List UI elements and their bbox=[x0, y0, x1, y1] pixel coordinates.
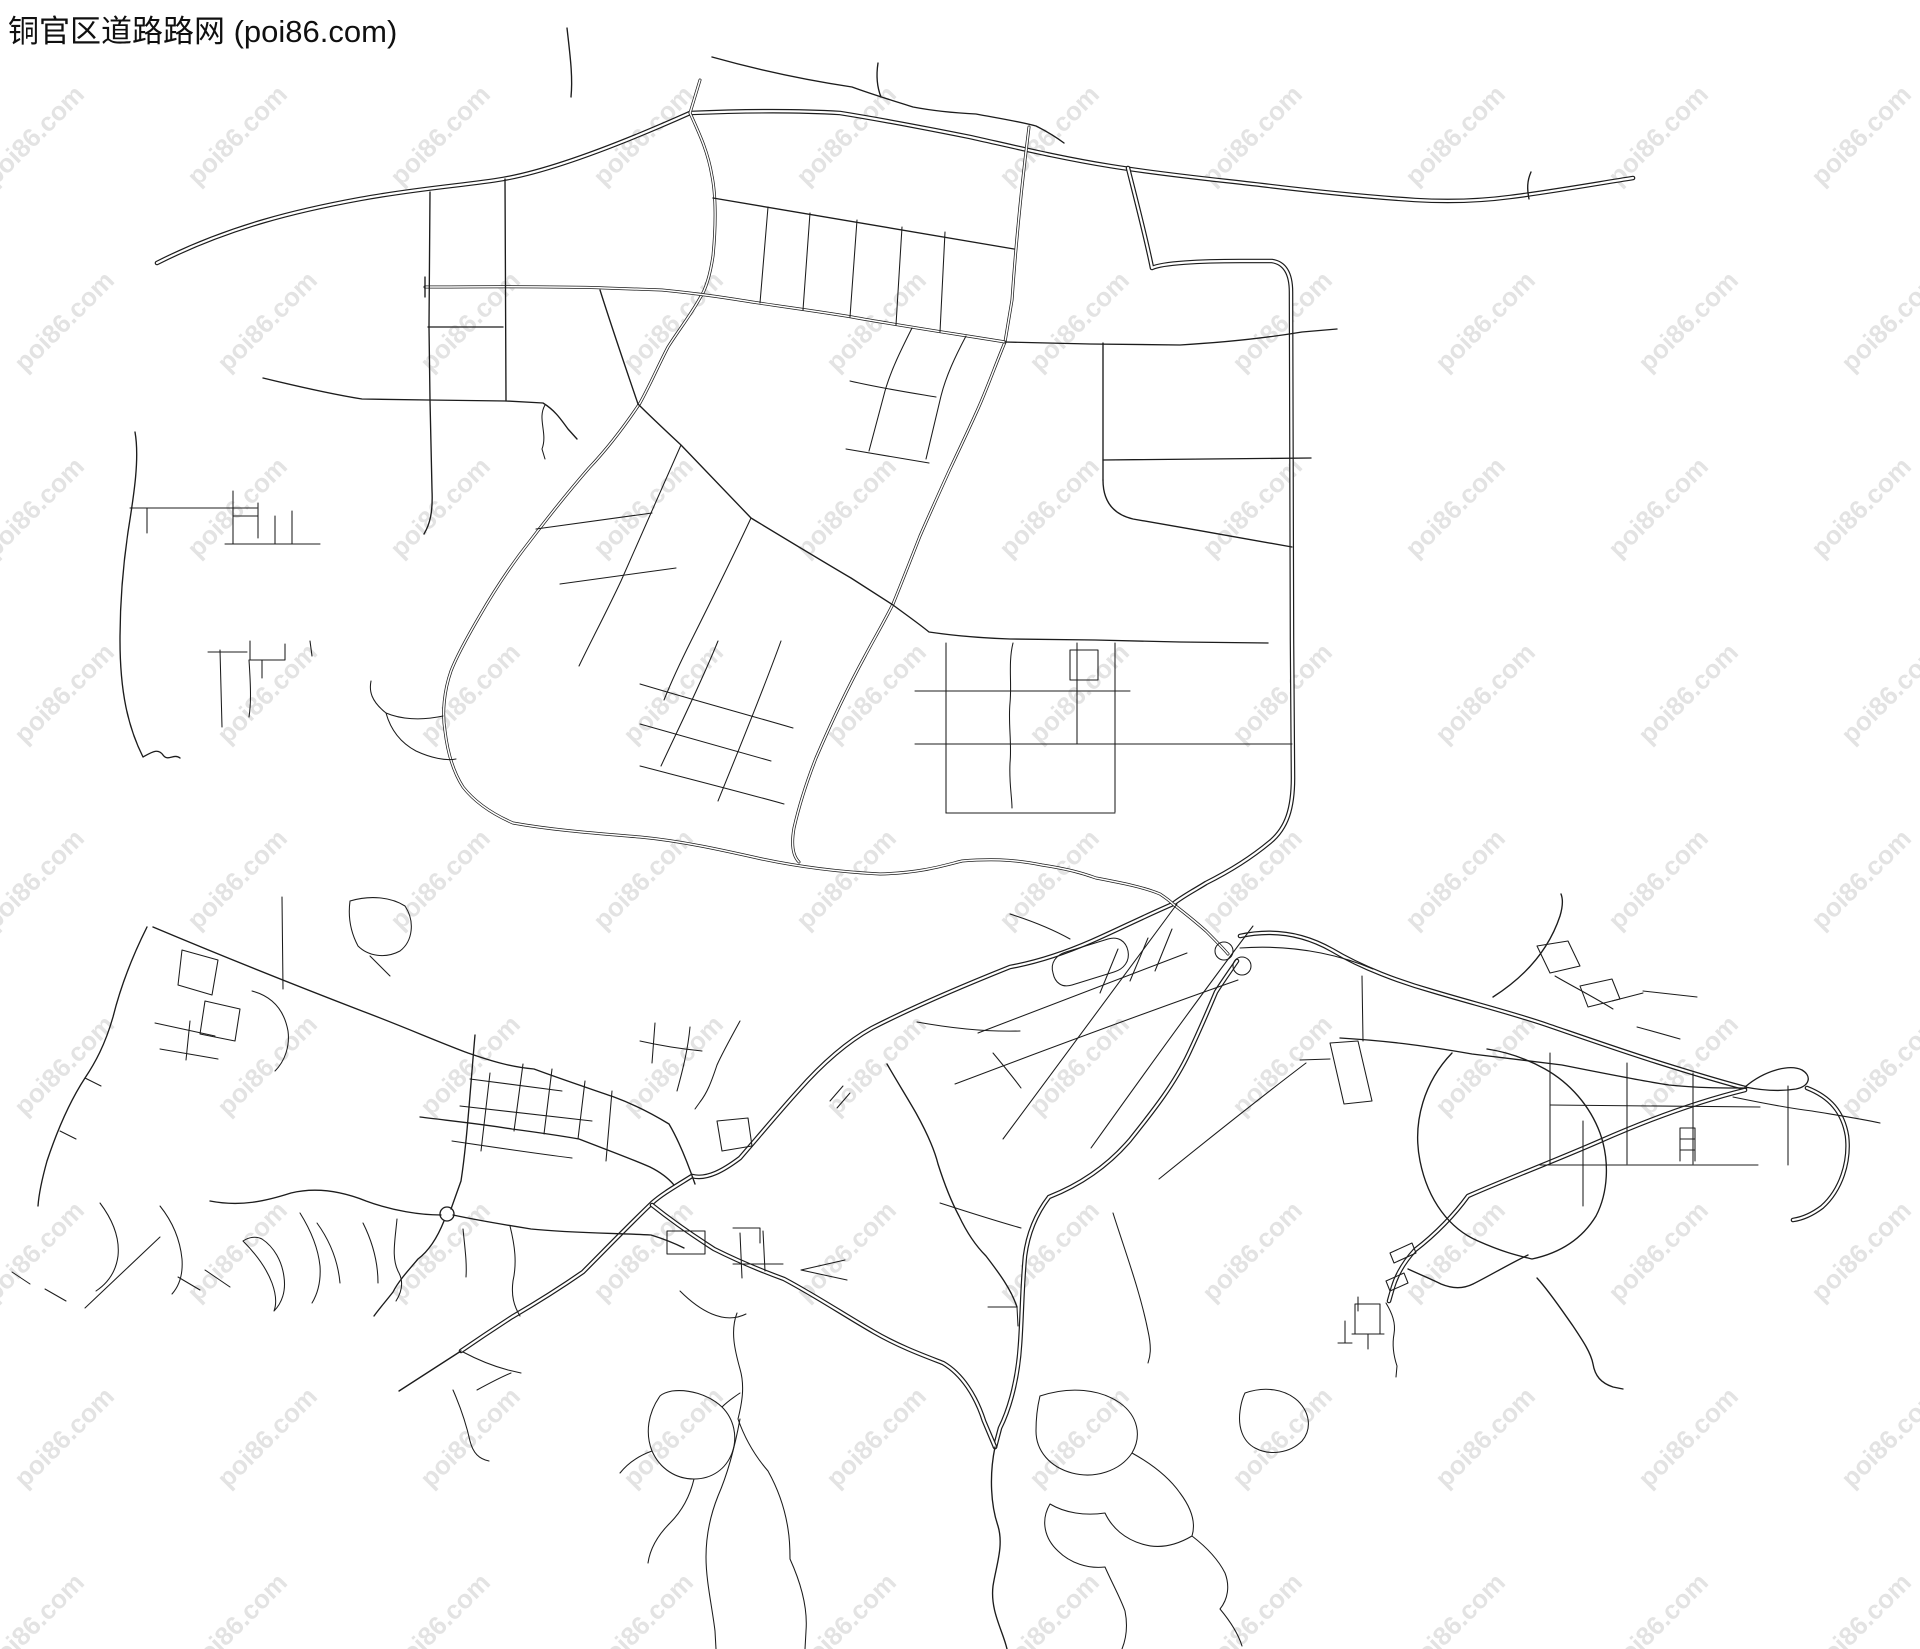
road-path bbox=[560, 568, 676, 584]
road-path bbox=[993, 1053, 1021, 1088]
road-path bbox=[1155, 929, 1172, 971]
road-path bbox=[652, 1023, 655, 1063]
road-path bbox=[85, 1078, 101, 1086]
road-path bbox=[1132, 1453, 1242, 1646]
road-path bbox=[640, 1041, 702, 1051]
road-path bbox=[652, 1205, 995, 1447]
road-path bbox=[477, 1373, 511, 1390]
road-path bbox=[1300, 1059, 1330, 1060]
road-path bbox=[45, 1289, 66, 1301]
road-path bbox=[1009, 643, 1013, 808]
road-path bbox=[424, 192, 432, 534]
road-path bbox=[648, 1479, 694, 1563]
road-path bbox=[988, 1307, 1018, 1326]
road-path bbox=[1240, 1389, 1309, 1452]
road-path bbox=[463, 1352, 521, 1373]
road-path bbox=[578, 1081, 585, 1139]
road-path bbox=[793, 127, 1029, 862]
road-path bbox=[955, 980, 1238, 1084]
road-path bbox=[60, 1131, 76, 1139]
road-path bbox=[510, 1226, 520, 1316]
road-path bbox=[444, 80, 1228, 954]
road-path bbox=[399, 1351, 461, 1391]
road-path bbox=[1330, 1041, 1372, 1104]
road-path bbox=[940, 1203, 1021, 1228]
road-path bbox=[282, 897, 283, 989]
road-path bbox=[363, 1223, 378, 1283]
road-path bbox=[1240, 947, 1373, 969]
road-path bbox=[349, 898, 411, 956]
road-path bbox=[200, 1001, 240, 1041]
road-path bbox=[896, 227, 902, 325]
road-path bbox=[536, 513, 652, 529]
road-path bbox=[178, 950, 218, 995]
road-path bbox=[38, 927, 147, 1206]
road-path bbox=[85, 1237, 160, 1308]
road-path bbox=[1493, 894, 1562, 997]
road-network-map bbox=[0, 0, 1920, 1649]
road-path bbox=[718, 641, 781, 801]
road-path bbox=[734, 1313, 807, 1649]
road-path bbox=[252, 991, 288, 1071]
road-path bbox=[567, 28, 572, 97]
road-path bbox=[664, 518, 751, 700]
road-path bbox=[1362, 976, 1363, 1041]
road-path bbox=[717, 1118, 752, 1151]
road-path bbox=[1537, 941, 1580, 973]
road-path bbox=[514, 1064, 523, 1131]
road-path bbox=[1103, 480, 1292, 547]
road-path bbox=[1005, 329, 1337, 345]
road-path bbox=[205, 1270, 230, 1287]
road-path bbox=[470, 1079, 562, 1091]
road-path bbox=[1010, 914, 1070, 939]
road-path bbox=[600, 290, 1268, 643]
page-title: 铜官区道路路网 (poi86.com) bbox=[8, 6, 397, 51]
road-path bbox=[830, 1086, 850, 1108]
road-path bbox=[1052, 938, 1128, 986]
road-path bbox=[544, 1069, 552, 1134]
road-path bbox=[661, 641, 718, 766]
road-path bbox=[995, 961, 1237, 1447]
road-path bbox=[155, 1021, 218, 1060]
road-path bbox=[1537, 1278, 1623, 1389]
road-path bbox=[1745, 1068, 1808, 1091]
road-path bbox=[220, 650, 222, 727]
road-path bbox=[178, 1277, 200, 1290]
road-path bbox=[1070, 650, 1098, 680]
road-path bbox=[850, 220, 857, 317]
road-path bbox=[712, 57, 1064, 143]
road-path bbox=[877, 63, 881, 97]
road-path bbox=[706, 1419, 740, 1649]
road-path bbox=[1036, 1390, 1137, 1475]
road-path bbox=[1355, 1304, 1380, 1334]
road-path bbox=[96, 1203, 118, 1291]
road-path bbox=[926, 336, 966, 459]
road-path bbox=[1389, 1090, 1745, 1301]
road-path bbox=[1338, 1297, 1384, 1349]
road-path bbox=[1130, 938, 1148, 981]
road-path bbox=[1408, 1255, 1528, 1288]
road-path bbox=[1113, 1213, 1150, 1363]
road-path bbox=[153, 927, 695, 1184]
road-path bbox=[460, 1106, 592, 1121]
road-path bbox=[695, 1021, 740, 1109]
road-path bbox=[1386, 1303, 1397, 1377]
road-path bbox=[243, 1237, 285, 1311]
road-path bbox=[370, 956, 390, 976]
road-path bbox=[542, 405, 545, 459]
road-path bbox=[640, 724, 771, 761]
road-path bbox=[713, 198, 1014, 249]
road-path bbox=[157, 111, 1633, 263]
road-path bbox=[1103, 458, 1311, 460]
road-path bbox=[677, 1027, 690, 1091]
road-path bbox=[846, 449, 929, 463]
road-path bbox=[425, 287, 1005, 342]
road-path bbox=[1612, 991, 1697, 1039]
road-path bbox=[680, 1291, 746, 1318]
road-path bbox=[1793, 1088, 1848, 1220]
road-path bbox=[940, 232, 945, 332]
road-path bbox=[991, 1447, 1007, 1649]
road-path bbox=[1100, 949, 1118, 993]
road-path bbox=[1389, 1090, 1745, 1301]
road-path bbox=[453, 1390, 489, 1461]
road-path bbox=[453, 1215, 684, 1248]
road-path bbox=[463, 1229, 466, 1277]
road-path bbox=[620, 1451, 652, 1473]
road-path bbox=[452, 1141, 572, 1158]
map-page: poi86.compoi86.compoi86.compoi86.compoi8… bbox=[0, 0, 1920, 1649]
road-path bbox=[1418, 1049, 1607, 1259]
road-path bbox=[374, 1221, 444, 1316]
road-path bbox=[801, 1260, 847, 1280]
road-path bbox=[640, 684, 793, 728]
road-path bbox=[505, 179, 506, 401]
road-path bbox=[370, 681, 443, 719]
road-path bbox=[12, 1272, 30, 1284]
road-path bbox=[1793, 1088, 1848, 1220]
road-path bbox=[995, 961, 1237, 1447]
road-path bbox=[263, 378, 577, 439]
road-path bbox=[210, 1190, 441, 1215]
road-path bbox=[481, 1073, 490, 1151]
road-path bbox=[887, 1064, 1017, 1307]
road-path bbox=[160, 1206, 182, 1294]
road-path bbox=[249, 641, 312, 717]
road-path bbox=[444, 80, 1228, 954]
road-path bbox=[1045, 1504, 1192, 1649]
road-path bbox=[722, 1393, 740, 1407]
road-path bbox=[760, 207, 768, 303]
road-path bbox=[157, 111, 1633, 263]
road-path bbox=[648, 1391, 734, 1479]
road-path bbox=[579, 445, 681, 666]
road-path bbox=[1733, 1097, 1880, 1123]
road-path bbox=[640, 766, 784, 804]
road-path bbox=[793, 127, 1029, 862]
road-path bbox=[850, 381, 936, 397]
road-path bbox=[1159, 1063, 1306, 1179]
road-path bbox=[803, 213, 810, 310]
road-path bbox=[300, 1213, 320, 1303]
road-path bbox=[1550, 1105, 1760, 1107]
road-path bbox=[1340, 1038, 1745, 1088]
road-path bbox=[225, 491, 320, 544]
road-path bbox=[120, 432, 180, 758]
junction-circle bbox=[440, 1207, 454, 1221]
road-path bbox=[420, 1117, 674, 1185]
road-path bbox=[1003, 904, 1177, 1139]
